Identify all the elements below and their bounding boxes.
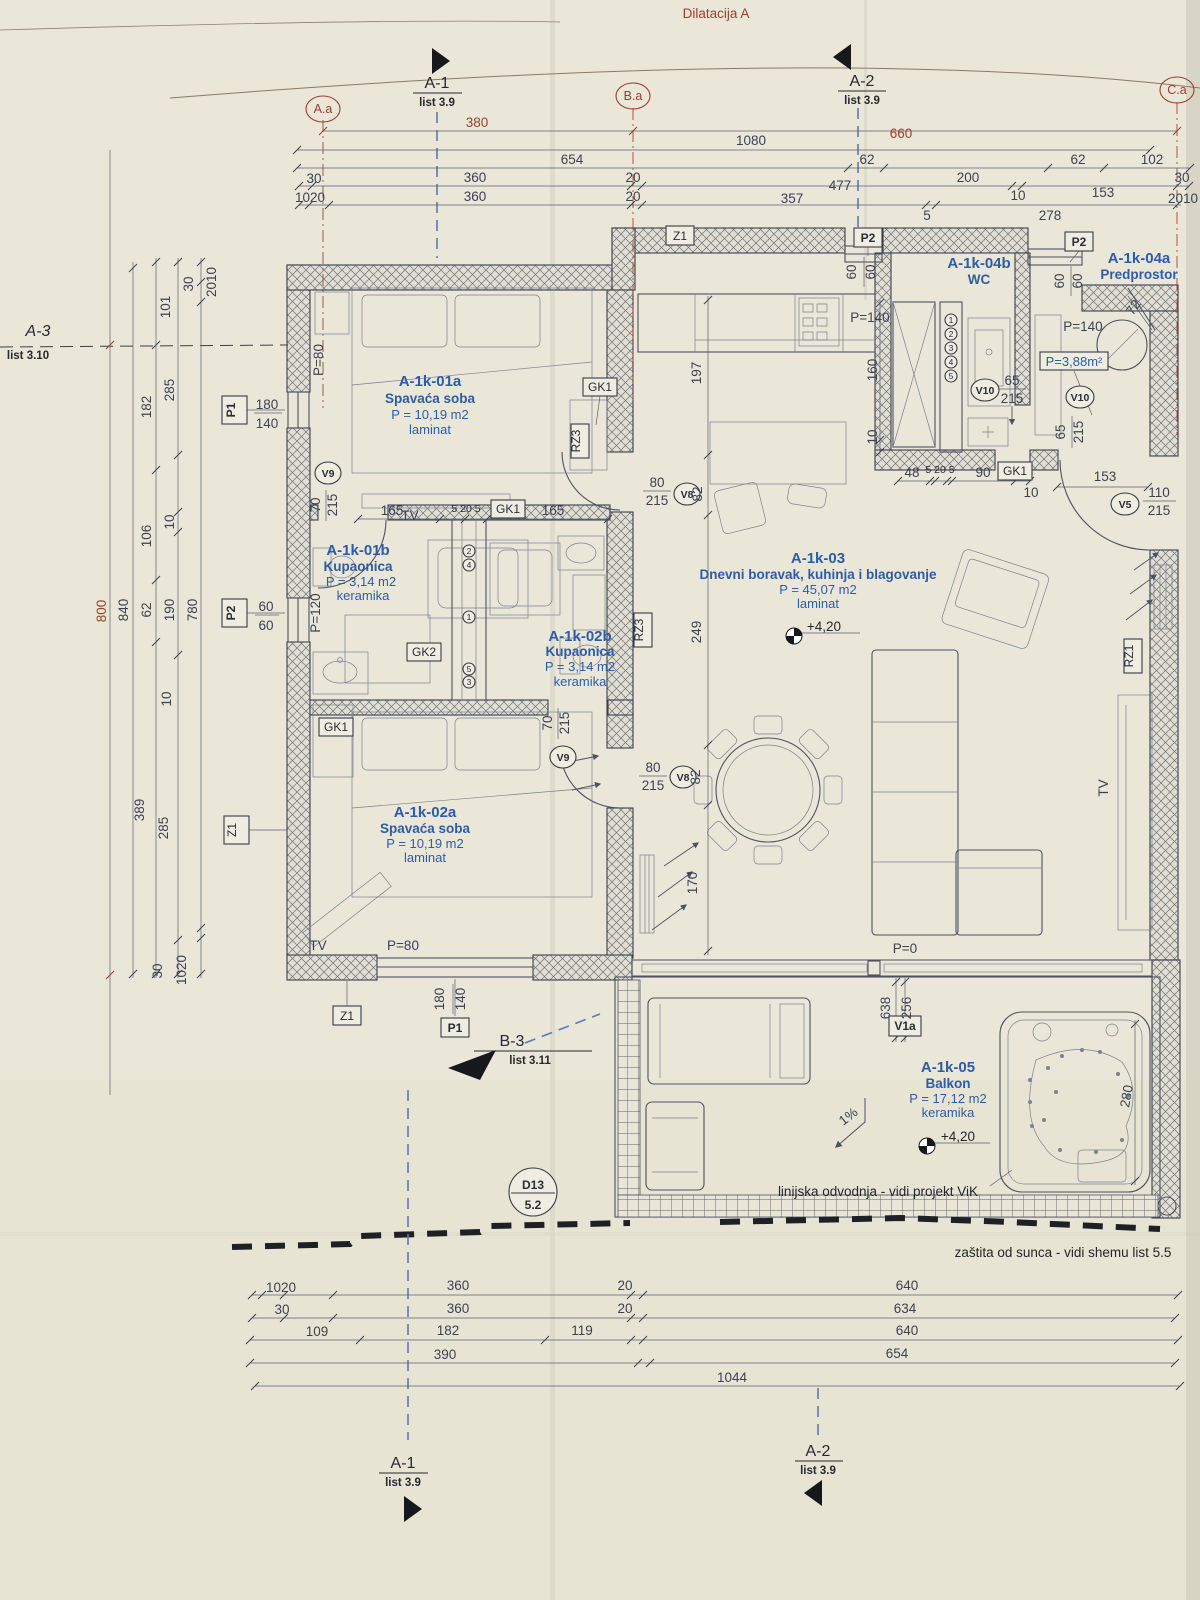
svg-text:1080: 1080 xyxy=(736,133,766,148)
tag-gk1-c: GK1 xyxy=(319,718,353,736)
svg-text:3: 3 xyxy=(467,677,472,687)
area-box-predprostor: P=3,88m² xyxy=(1046,354,1103,369)
detail-marker-d13: D13 5.2 xyxy=(509,1168,557,1216)
svg-text:keramika: keramika xyxy=(922,1105,976,1120)
svg-text:634: 634 xyxy=(894,1301,917,1316)
svg-text:20: 20 xyxy=(625,189,640,204)
svg-text:215: 215 xyxy=(1071,421,1086,444)
svg-text:P1: P1 xyxy=(448,1021,463,1035)
svg-text:A-1k-04a: A-1k-04a xyxy=(1108,250,1171,267)
svg-text:20: 20 xyxy=(617,1301,632,1316)
svg-text:list 3.9: list 3.9 xyxy=(800,1465,836,1477)
svg-text:1020: 1020 xyxy=(295,190,325,205)
svg-text:62: 62 xyxy=(139,602,154,617)
svg-text:1: 1 xyxy=(467,612,472,622)
svg-text:Balkon: Balkon xyxy=(925,1076,970,1091)
svg-text:197: 197 xyxy=(689,362,704,385)
svg-text:1: 1 xyxy=(949,315,954,325)
svg-text:Z1: Z1 xyxy=(225,823,239,837)
svg-text:A-1k-01a: A-1k-01a xyxy=(399,373,462,390)
svg-text:82: 82 xyxy=(688,769,703,784)
svg-text:A-2: A-2 xyxy=(806,1443,831,1460)
svg-text:380: 380 xyxy=(466,115,489,130)
svg-text:215: 215 xyxy=(1148,503,1171,518)
svg-text:180: 180 xyxy=(432,988,447,1011)
svg-text:285: 285 xyxy=(162,379,177,402)
svg-text:A-1k-05: A-1k-05 xyxy=(921,1059,975,1076)
svg-text:65: 65 xyxy=(1004,373,1019,388)
svg-text:215: 215 xyxy=(1001,391,1024,406)
svg-text:list 3.9: list 3.9 xyxy=(419,97,455,109)
svg-text:P2: P2 xyxy=(224,605,238,620)
svg-text:A-1: A-1 xyxy=(425,75,450,92)
svg-text:10: 10 xyxy=(162,514,177,529)
svg-text:P = 17,12 m2: P = 17,12 m2 xyxy=(909,1091,986,1106)
svg-text:V9: V9 xyxy=(557,752,570,764)
svg-text:P = 3,14 m2: P = 3,14 m2 xyxy=(326,574,396,589)
svg-text:638: 638 xyxy=(878,997,893,1020)
svg-text:GK1: GK1 xyxy=(1003,464,1027,478)
svg-text:60: 60 xyxy=(1052,273,1067,288)
svg-text:30: 30 xyxy=(150,963,165,978)
svg-text:278: 278 xyxy=(1039,208,1062,223)
svg-text:V1a: V1a xyxy=(894,1019,916,1033)
svg-text:P2: P2 xyxy=(861,231,876,245)
svg-text:list 3.9: list 3.9 xyxy=(844,95,880,107)
svg-text:70: 70 xyxy=(308,497,323,512)
svg-text:109: 109 xyxy=(306,1324,329,1339)
svg-text:A-3: A-3 xyxy=(25,323,51,340)
shaft-numbers-bathrooms: 2 4 1 5 3 xyxy=(463,545,475,688)
svg-text:laminat: laminat xyxy=(404,850,446,865)
svg-text:90: 90 xyxy=(975,465,990,480)
svg-text:1044: 1044 xyxy=(717,1370,748,1385)
svg-text:A-1: A-1 xyxy=(391,1455,416,1472)
svg-text:60: 60 xyxy=(258,599,273,614)
svg-text:119: 119 xyxy=(571,1323,593,1338)
note-drainage: linijska odvodnja - vidi projekt ViK xyxy=(778,1184,978,1199)
svg-text:360: 360 xyxy=(464,189,487,204)
svg-text:48: 48 xyxy=(904,465,919,480)
tag-rz3-a: RZ3 xyxy=(569,424,589,458)
svg-text:10: 10 xyxy=(865,429,880,444)
svg-text:A-1k-01b: A-1k-01b xyxy=(326,542,389,559)
shaft-numbers-wc: 1 2 3 4 5 xyxy=(945,314,957,382)
svg-text:C.a: C.a xyxy=(1167,83,1187,97)
svg-text:215: 215 xyxy=(325,494,340,517)
svg-text:GK2: GK2 xyxy=(412,645,436,659)
svg-text:110: 110 xyxy=(1148,485,1170,500)
svg-text:660: 660 xyxy=(890,126,913,141)
svg-text:A-1k-04b: A-1k-04b xyxy=(947,255,1010,272)
svg-text:2010: 2010 xyxy=(204,267,219,297)
svg-text:3: 3 xyxy=(949,343,954,353)
svg-text:A-2: A-2 xyxy=(850,73,875,90)
svg-text:+4,20: +4,20 xyxy=(807,619,841,634)
svg-text:215: 215 xyxy=(646,493,669,508)
svg-text:P = 10,19 m2: P = 10,19 m2 xyxy=(386,836,463,851)
svg-text:laminat: laminat xyxy=(409,422,451,437)
svg-text:170: 170 xyxy=(685,872,700,895)
tag-z1-top: Z1 xyxy=(666,226,694,245)
svg-text:190: 190 xyxy=(162,599,177,622)
svg-text:B.a: B.a xyxy=(624,89,643,103)
svg-text:A-1k-02a: A-1k-02a xyxy=(394,804,457,821)
tag-tv-bedroom2: TV xyxy=(309,938,326,953)
svg-text:30: 30 xyxy=(306,171,321,186)
svg-text:70: 70 xyxy=(540,715,555,730)
svg-text:140: 140 xyxy=(453,988,468,1011)
svg-text:Kupaonica: Kupaonica xyxy=(545,644,615,659)
svg-text:82: 82 xyxy=(690,486,705,501)
svg-text:30: 30 xyxy=(274,1302,289,1317)
svg-text:5: 5 xyxy=(923,208,931,223)
svg-text:654: 654 xyxy=(886,1346,909,1361)
svg-text:20: 20 xyxy=(617,1278,632,1293)
parapet-p80b: P=80 xyxy=(387,938,419,953)
svg-text:249: 249 xyxy=(689,621,704,644)
svg-text:62: 62 xyxy=(859,152,874,167)
svg-text:800: 800 xyxy=(94,600,109,623)
svg-text:Dnevni boravak, kuhinja i blag: Dnevni boravak, kuhinja i blagovanje xyxy=(699,567,937,582)
svg-text:P1: P1 xyxy=(224,402,238,417)
svg-text:360: 360 xyxy=(447,1301,470,1316)
svg-text:1020: 1020 xyxy=(266,1280,296,1295)
svg-text:654: 654 xyxy=(561,152,584,167)
room-label-02b: A-1k-02b Kupaonica P = 3,14 m2 keramika xyxy=(545,628,615,689)
svg-text:5.2: 5.2 xyxy=(525,1198,542,1212)
svg-text:5: 5 xyxy=(949,371,954,381)
svg-text:30: 30 xyxy=(1174,170,1189,185)
svg-text:GK1: GK1 xyxy=(324,720,348,734)
svg-text:A-1k-02b: A-1k-02b xyxy=(548,628,611,645)
tag-gk2: GK2 xyxy=(407,643,441,661)
svg-text:60: 60 xyxy=(1070,273,1085,288)
svg-text:V9: V9 xyxy=(322,468,335,480)
svg-text:V10: V10 xyxy=(1071,392,1090,404)
svg-text:list 3.10: list 3.10 xyxy=(7,350,49,362)
floor-plan-svg: Dilatacija A A.a B.a C.a A-1 list 3.9 A-… xyxy=(0,0,1200,1600)
blueprint-sheet: Dilatacija A A.a B.a C.a A-1 list 3.9 A-… xyxy=(0,0,1200,1600)
svg-text:60: 60 xyxy=(863,264,878,279)
svg-text:Predprostor: Predprostor xyxy=(1100,267,1178,282)
svg-text:180: 180 xyxy=(256,397,279,412)
svg-text:10: 10 xyxy=(1023,485,1038,500)
svg-text:215: 215 xyxy=(642,778,665,793)
svg-text:1020: 1020 xyxy=(174,955,189,985)
svg-text:laminat: laminat xyxy=(797,596,839,611)
svg-text:215: 215 xyxy=(557,712,572,735)
svg-text:182: 182 xyxy=(139,396,154,419)
svg-text:389: 389 xyxy=(132,799,147,822)
svg-text:153: 153 xyxy=(1092,185,1115,200)
svg-text:RZ3: RZ3 xyxy=(632,618,646,641)
svg-text:list 3.9: list 3.9 xyxy=(385,1477,421,1489)
svg-text:2: 2 xyxy=(949,329,954,339)
svg-text:RZ3: RZ3 xyxy=(569,429,583,452)
svg-text:P = 45,07 m2: P = 45,07 m2 xyxy=(779,582,856,597)
tag-rz1: RZ1 xyxy=(1122,639,1142,673)
svg-text:256: 256 xyxy=(899,997,914,1020)
tag-rz3-b: RZ3 xyxy=(632,613,652,647)
svg-text:V5: V5 xyxy=(1119,499,1132,511)
svg-text:list 3.11: list 3.11 xyxy=(509,1055,551,1067)
svg-text:P = 3,14 m2: P = 3,14 m2 xyxy=(545,659,615,674)
svg-text:780: 780 xyxy=(185,599,200,622)
tag-gk1-b: GK1 xyxy=(491,500,525,518)
svg-text:10: 10 xyxy=(159,691,174,706)
svg-text:160: 160 xyxy=(865,359,880,382)
tag-tv-living: TV xyxy=(1096,779,1111,796)
svg-text:390: 390 xyxy=(434,1347,457,1362)
svg-text:Kupaonica: Kupaonica xyxy=(323,559,393,574)
svg-text:60: 60 xyxy=(258,618,273,633)
svg-text:140: 140 xyxy=(256,416,279,431)
svg-text:+4,20: +4,20 xyxy=(941,1129,975,1144)
svg-text:106: 106 xyxy=(139,525,154,548)
svg-text:B-3: B-3 xyxy=(500,1033,525,1050)
svg-text:GK1: GK1 xyxy=(496,502,520,516)
svg-text:5: 5 xyxy=(467,664,472,674)
svg-text:P = 10,19 m2: P = 10,19 m2 xyxy=(391,407,468,422)
svg-text:165: 165 xyxy=(542,503,565,518)
svg-text:5 20 5: 5 20 5 xyxy=(451,503,480,515)
svg-text:357: 357 xyxy=(781,191,804,206)
svg-text:102: 102 xyxy=(1141,152,1164,167)
svg-text:640: 640 xyxy=(896,1323,919,1338)
svg-text:Spavaća soba: Spavaća soba xyxy=(385,391,476,406)
svg-text:640: 640 xyxy=(896,1278,919,1293)
svg-text:477: 477 xyxy=(829,178,852,193)
svg-text:5 20 5: 5 20 5 xyxy=(925,464,954,476)
svg-text:60: 60 xyxy=(844,264,859,279)
parapet-p140b: P=140 xyxy=(1063,319,1102,334)
svg-text:4: 4 xyxy=(467,560,472,570)
svg-text:10: 10 xyxy=(1010,188,1025,203)
svg-text:165: 165 xyxy=(381,503,404,518)
svg-text:2: 2 xyxy=(467,546,472,556)
parapet-p140a: P=140 xyxy=(850,310,889,325)
svg-text:285: 285 xyxy=(156,817,171,840)
svg-text:A.a: A.a xyxy=(314,102,333,116)
svg-text:Z1: Z1 xyxy=(340,1009,354,1023)
note-sun: zaštita od sunca - vidi shemu list 5.5 xyxy=(955,1245,1172,1260)
svg-text:keramika: keramika xyxy=(554,674,608,689)
svg-text:V10: V10 xyxy=(976,385,995,397)
svg-text:840: 840 xyxy=(116,599,131,622)
svg-text:62: 62 xyxy=(1070,152,1085,167)
svg-text:200: 200 xyxy=(957,170,980,185)
svg-text:Spavaća soba: Spavaća soba xyxy=(380,821,471,836)
svg-text:A-1k-03: A-1k-03 xyxy=(791,550,845,567)
svg-text:4: 4 xyxy=(949,357,954,367)
svg-text:WC: WC xyxy=(968,272,991,287)
svg-text:RZ1: RZ1 xyxy=(1122,644,1136,667)
svg-text:182: 182 xyxy=(437,1323,460,1338)
svg-text:30: 30 xyxy=(181,276,196,291)
svg-text:101: 101 xyxy=(158,296,173,319)
svg-text:153: 153 xyxy=(1094,469,1117,484)
svg-text:65: 65 xyxy=(1053,424,1068,439)
svg-text:80: 80 xyxy=(645,760,660,775)
svg-text:GK1: GK1 xyxy=(588,380,612,394)
svg-text:2010: 2010 xyxy=(1168,191,1198,206)
tag-tv-bedroom1: TV xyxy=(401,508,418,523)
parapet-p80a: P=80 xyxy=(311,344,326,376)
svg-text:20: 20 xyxy=(625,170,640,185)
parapet-p0: P=0 xyxy=(893,941,917,956)
svg-text:P2: P2 xyxy=(1072,235,1087,249)
tag-gk1-d: GK1 xyxy=(998,462,1032,480)
svg-text:80: 80 xyxy=(649,475,664,490)
svg-text:keramika: keramika xyxy=(337,588,391,603)
svg-text:360: 360 xyxy=(447,1278,470,1293)
svg-text:D13: D13 xyxy=(522,1178,544,1192)
svg-text:360: 360 xyxy=(464,170,487,185)
sheet-title: Dilatacija A xyxy=(683,6,750,21)
parapet-p120: P=120 xyxy=(308,593,323,632)
svg-text:Z1: Z1 xyxy=(673,229,687,243)
drainage-channel-vertical xyxy=(618,980,640,1195)
